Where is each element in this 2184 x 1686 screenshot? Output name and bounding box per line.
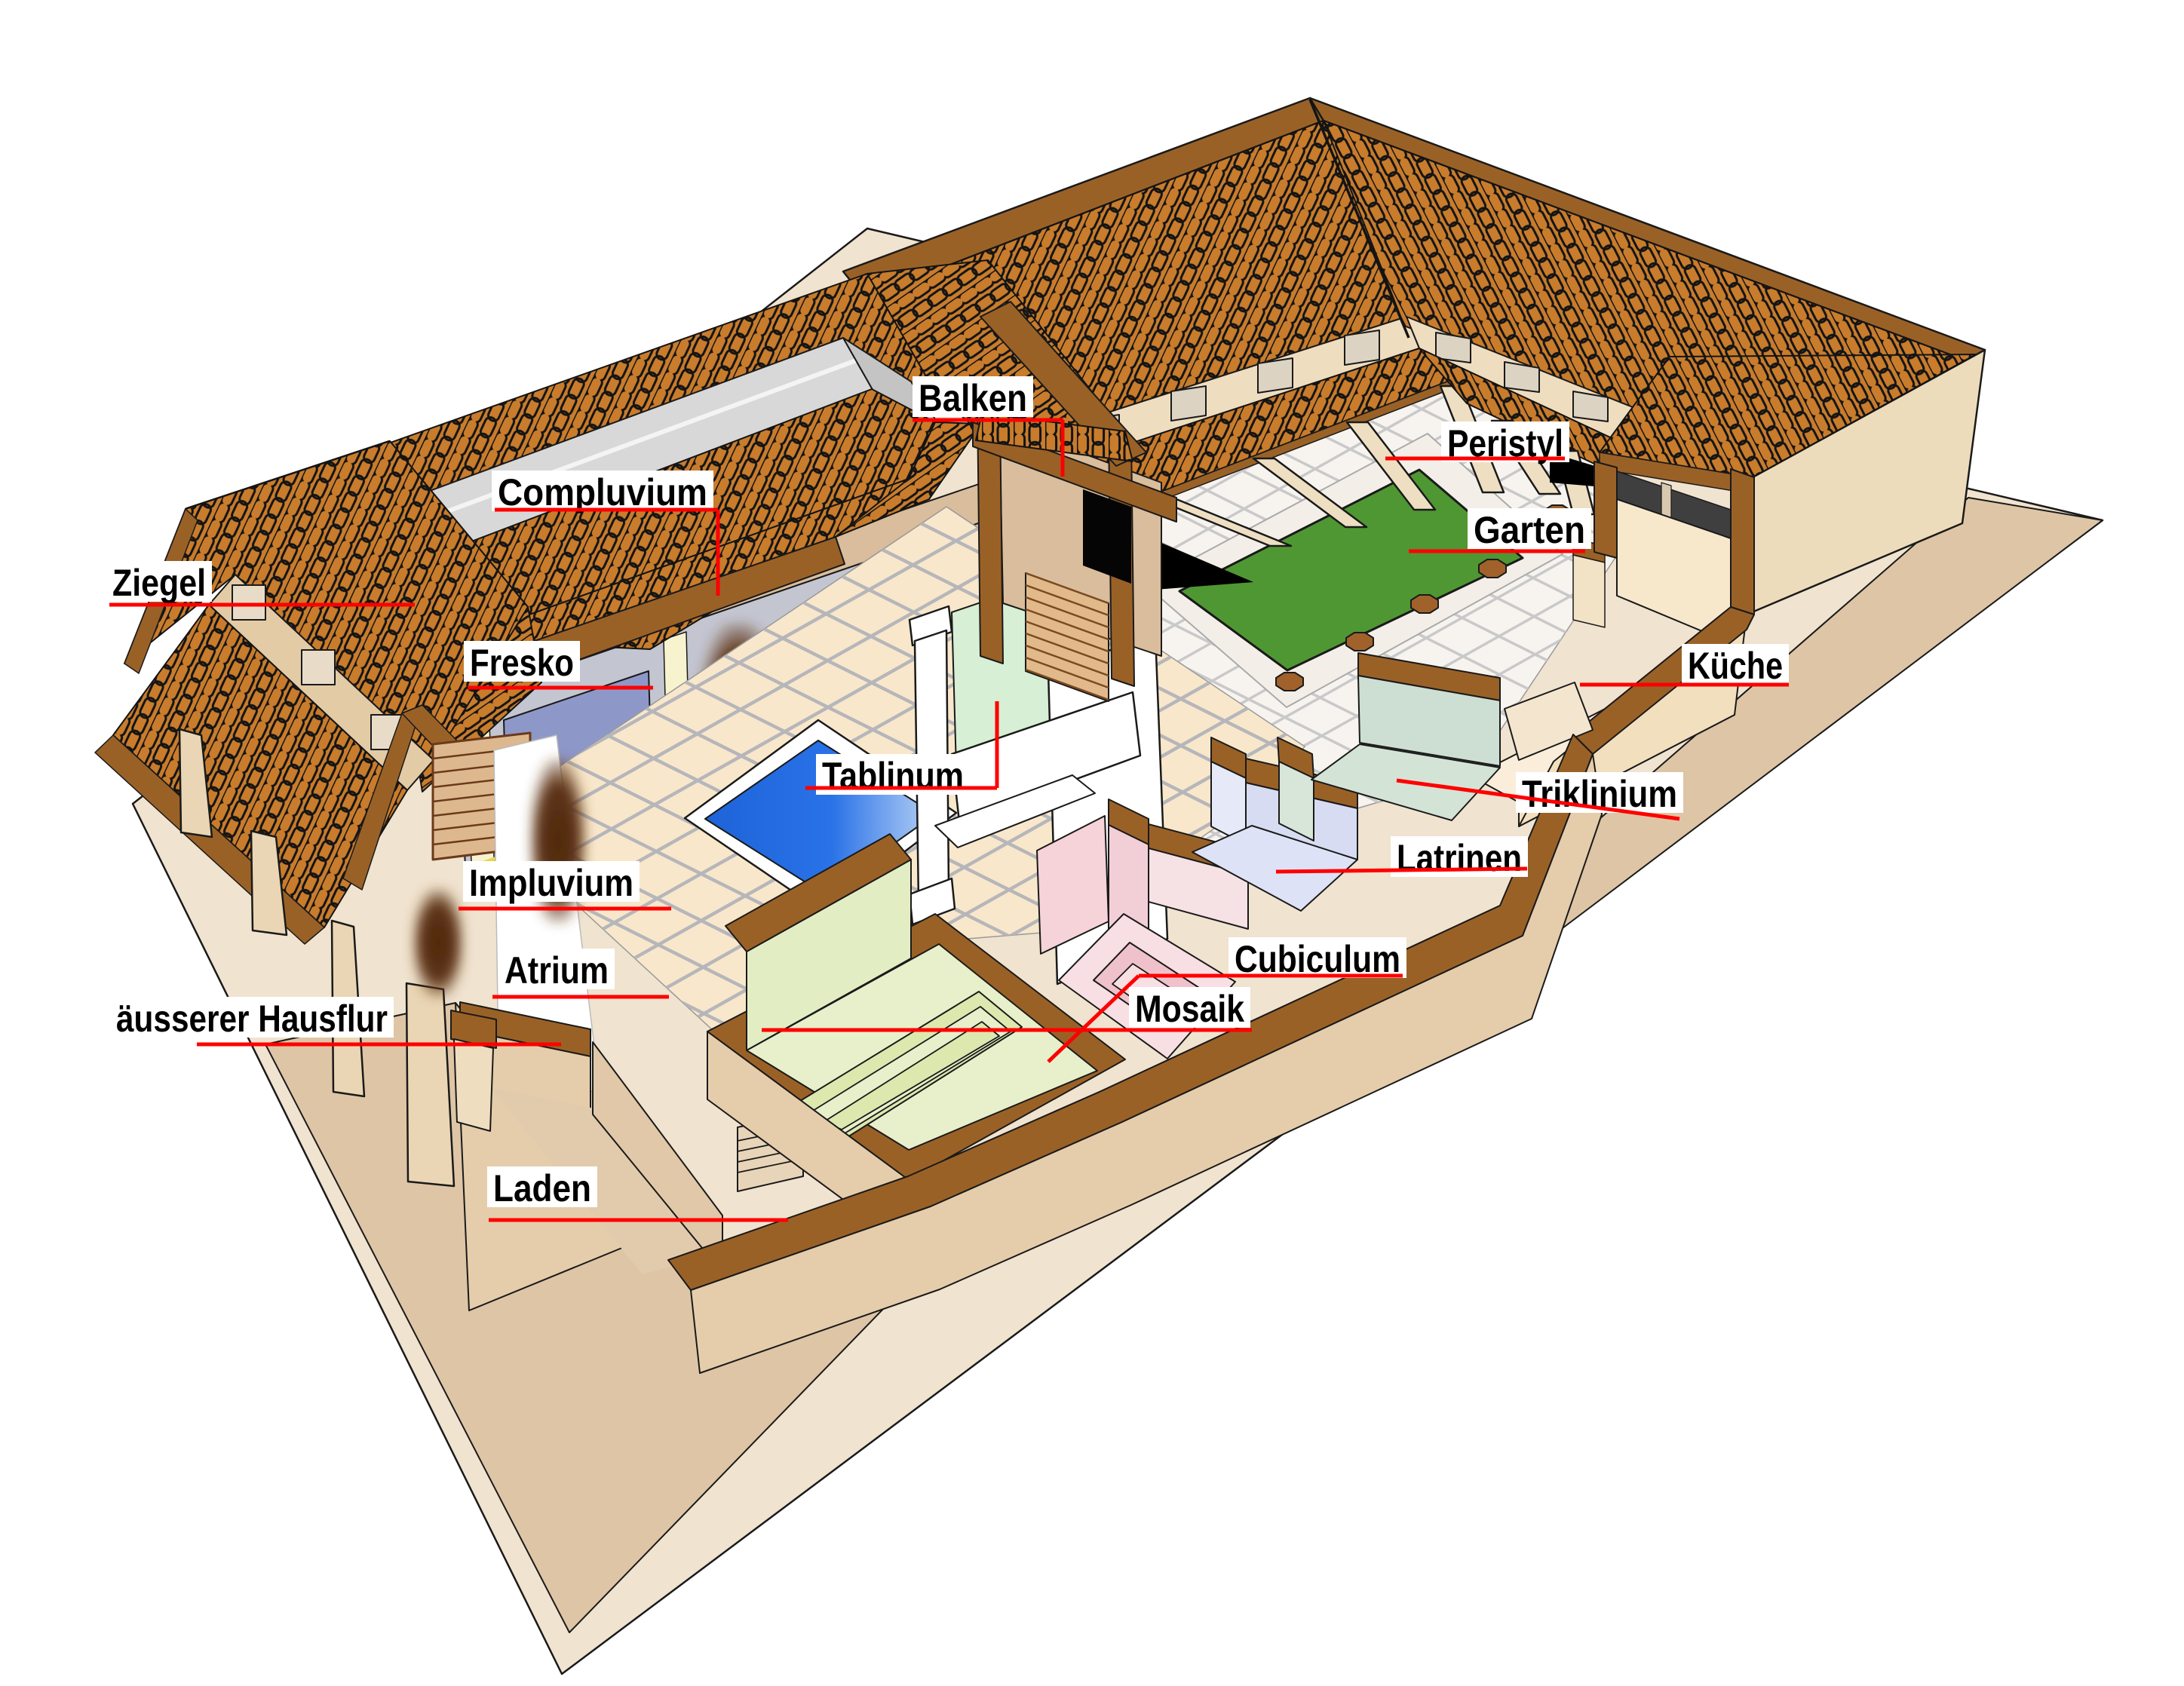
svg-text:Garten: Garten — [1474, 509, 1585, 551]
svg-text:Impluvium: Impluvium — [469, 862, 633, 904]
svg-text:Mosaik: Mosaik — [1135, 988, 1244, 1030]
svg-text:Ziegel: Ziegel — [112, 562, 206, 604]
svg-text:Küche: Küche — [1688, 645, 1783, 687]
svg-text:äusserer Hausflur: äusserer Hausflur — [116, 998, 388, 1040]
svg-text:Fresko: Fresko — [470, 642, 574, 684]
svg-text:Laden: Laden — [493, 1167, 591, 1209]
svg-text:Compluvium: Compluvium — [498, 471, 707, 513]
svg-text:Atrium: Atrium — [505, 949, 609, 992]
svg-text:Balken: Balken — [919, 377, 1027, 419]
svg-text:Latrinen: Latrinen — [1397, 837, 1522, 879]
svg-text:Tablinum: Tablinum — [822, 755, 964, 797]
